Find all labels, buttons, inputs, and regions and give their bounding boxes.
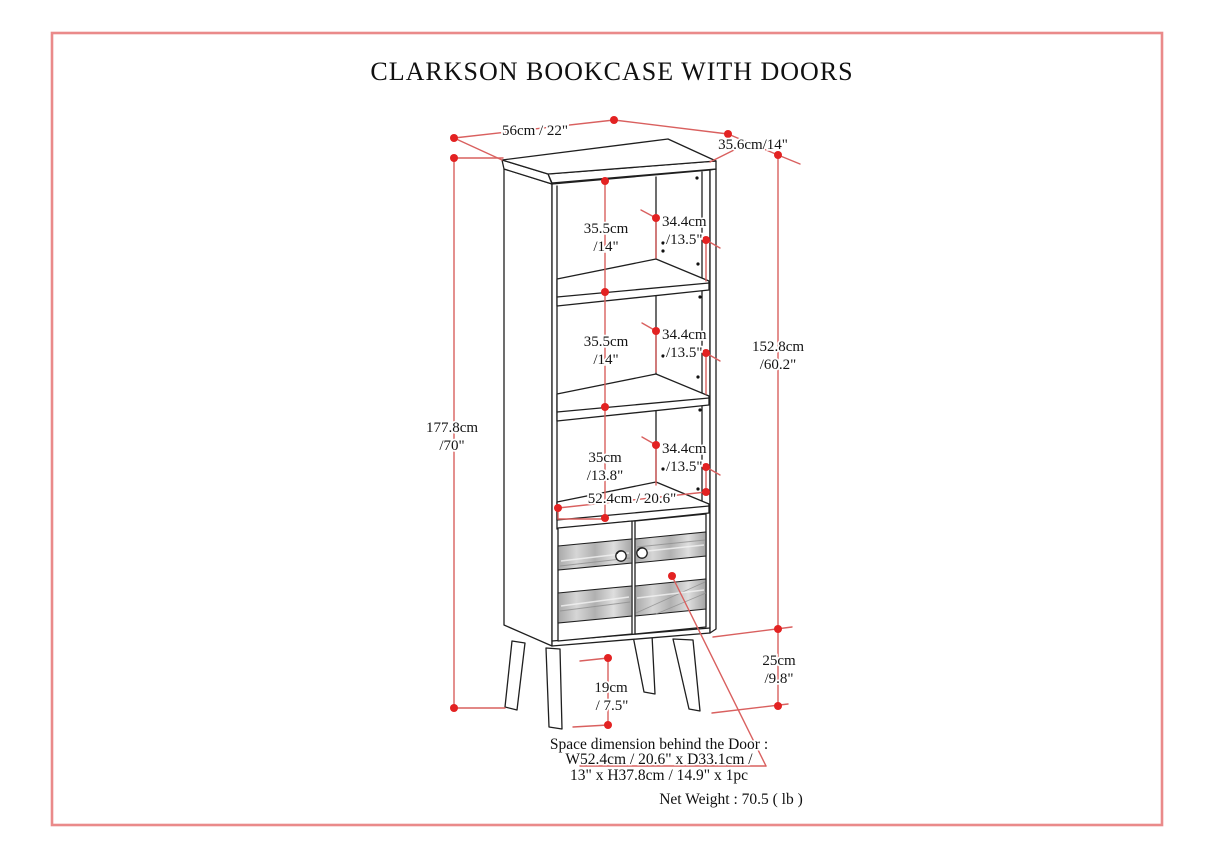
door-space-note-line3: 13" x H37.8cm / 14.9" x 1pc <box>570 767 748 784</box>
right-edge-strip <box>710 169 716 633</box>
left-door <box>558 521 632 641</box>
spec-sheet-svg: CLARKSON BOOKCASE WITH DOORS <box>0 0 1214 858</box>
cabinet-doors <box>558 514 706 641</box>
label-cubby3-depth-in: /13.5" <box>666 459 703 475</box>
leg-back-left <box>505 641 525 710</box>
label-cubby1-depth-cm: 34.4cm <box>662 214 707 230</box>
spec-sheet: CLARKSON BOOKCASE WITH DOORS <box>0 0 1214 858</box>
label-cubby3-height-cm: 35cm <box>588 450 622 466</box>
label-overall-height-in: /70" <box>439 438 464 454</box>
label-top-width: 56cm / 22" <box>502 123 568 139</box>
leg-front-left <box>546 648 562 729</box>
label-cubby2-depth-in: /13.5" <box>666 345 703 361</box>
label-base-clearance-cm: 25cm <box>762 653 796 669</box>
right-door-knob <box>637 548 647 558</box>
label-cubby1-height-cm: 35.5cm <box>584 221 629 237</box>
door-space-note-line2: W52.4cm / 20.6" x D33.1cm / <box>565 751 753 768</box>
leg-front-right <box>673 639 700 711</box>
label-overall-height-cm: 177.8cm <box>426 420 478 436</box>
page-title: CLARKSON BOOKCASE WITH DOORS <box>370 57 853 86</box>
label-body-height-in: /60.2" <box>760 357 797 373</box>
label-cubby1-depth-in: /13.5" <box>666 232 703 248</box>
label-body-height-cm: 152.8cm <box>752 339 804 355</box>
left-side-panel <box>504 169 552 646</box>
label-cubby3-depth-cm: 34.4cm <box>662 441 707 457</box>
label-cubby2-height-in: /14" <box>593 352 618 368</box>
label-cubby3-height-in: /13.8" <box>587 468 624 484</box>
label-interior-width: 52.4cm / 20.6" <box>588 491 677 507</box>
label-leg-height-in: / 7.5" <box>596 698 629 714</box>
label-cubby2-height-cm: 35.5cm <box>584 334 629 350</box>
label-cubby1-height-in: /14" <box>593 239 618 255</box>
label-base-clearance-in: /9.8" <box>764 671 793 687</box>
net-weight-note: Net Weight : 70.5 ( lb ) <box>659 791 803 808</box>
label-leg-height-cm: 19cm <box>594 680 628 696</box>
label-top-depth: 35.6cm/14" <box>718 137 788 153</box>
leg-back-right <box>633 635 655 694</box>
label-cubby2-depth-cm: 34.4cm <box>662 327 707 343</box>
notes: Space dimension behind the Door : W52.4c… <box>550 736 803 808</box>
left-door-knob <box>616 551 626 561</box>
